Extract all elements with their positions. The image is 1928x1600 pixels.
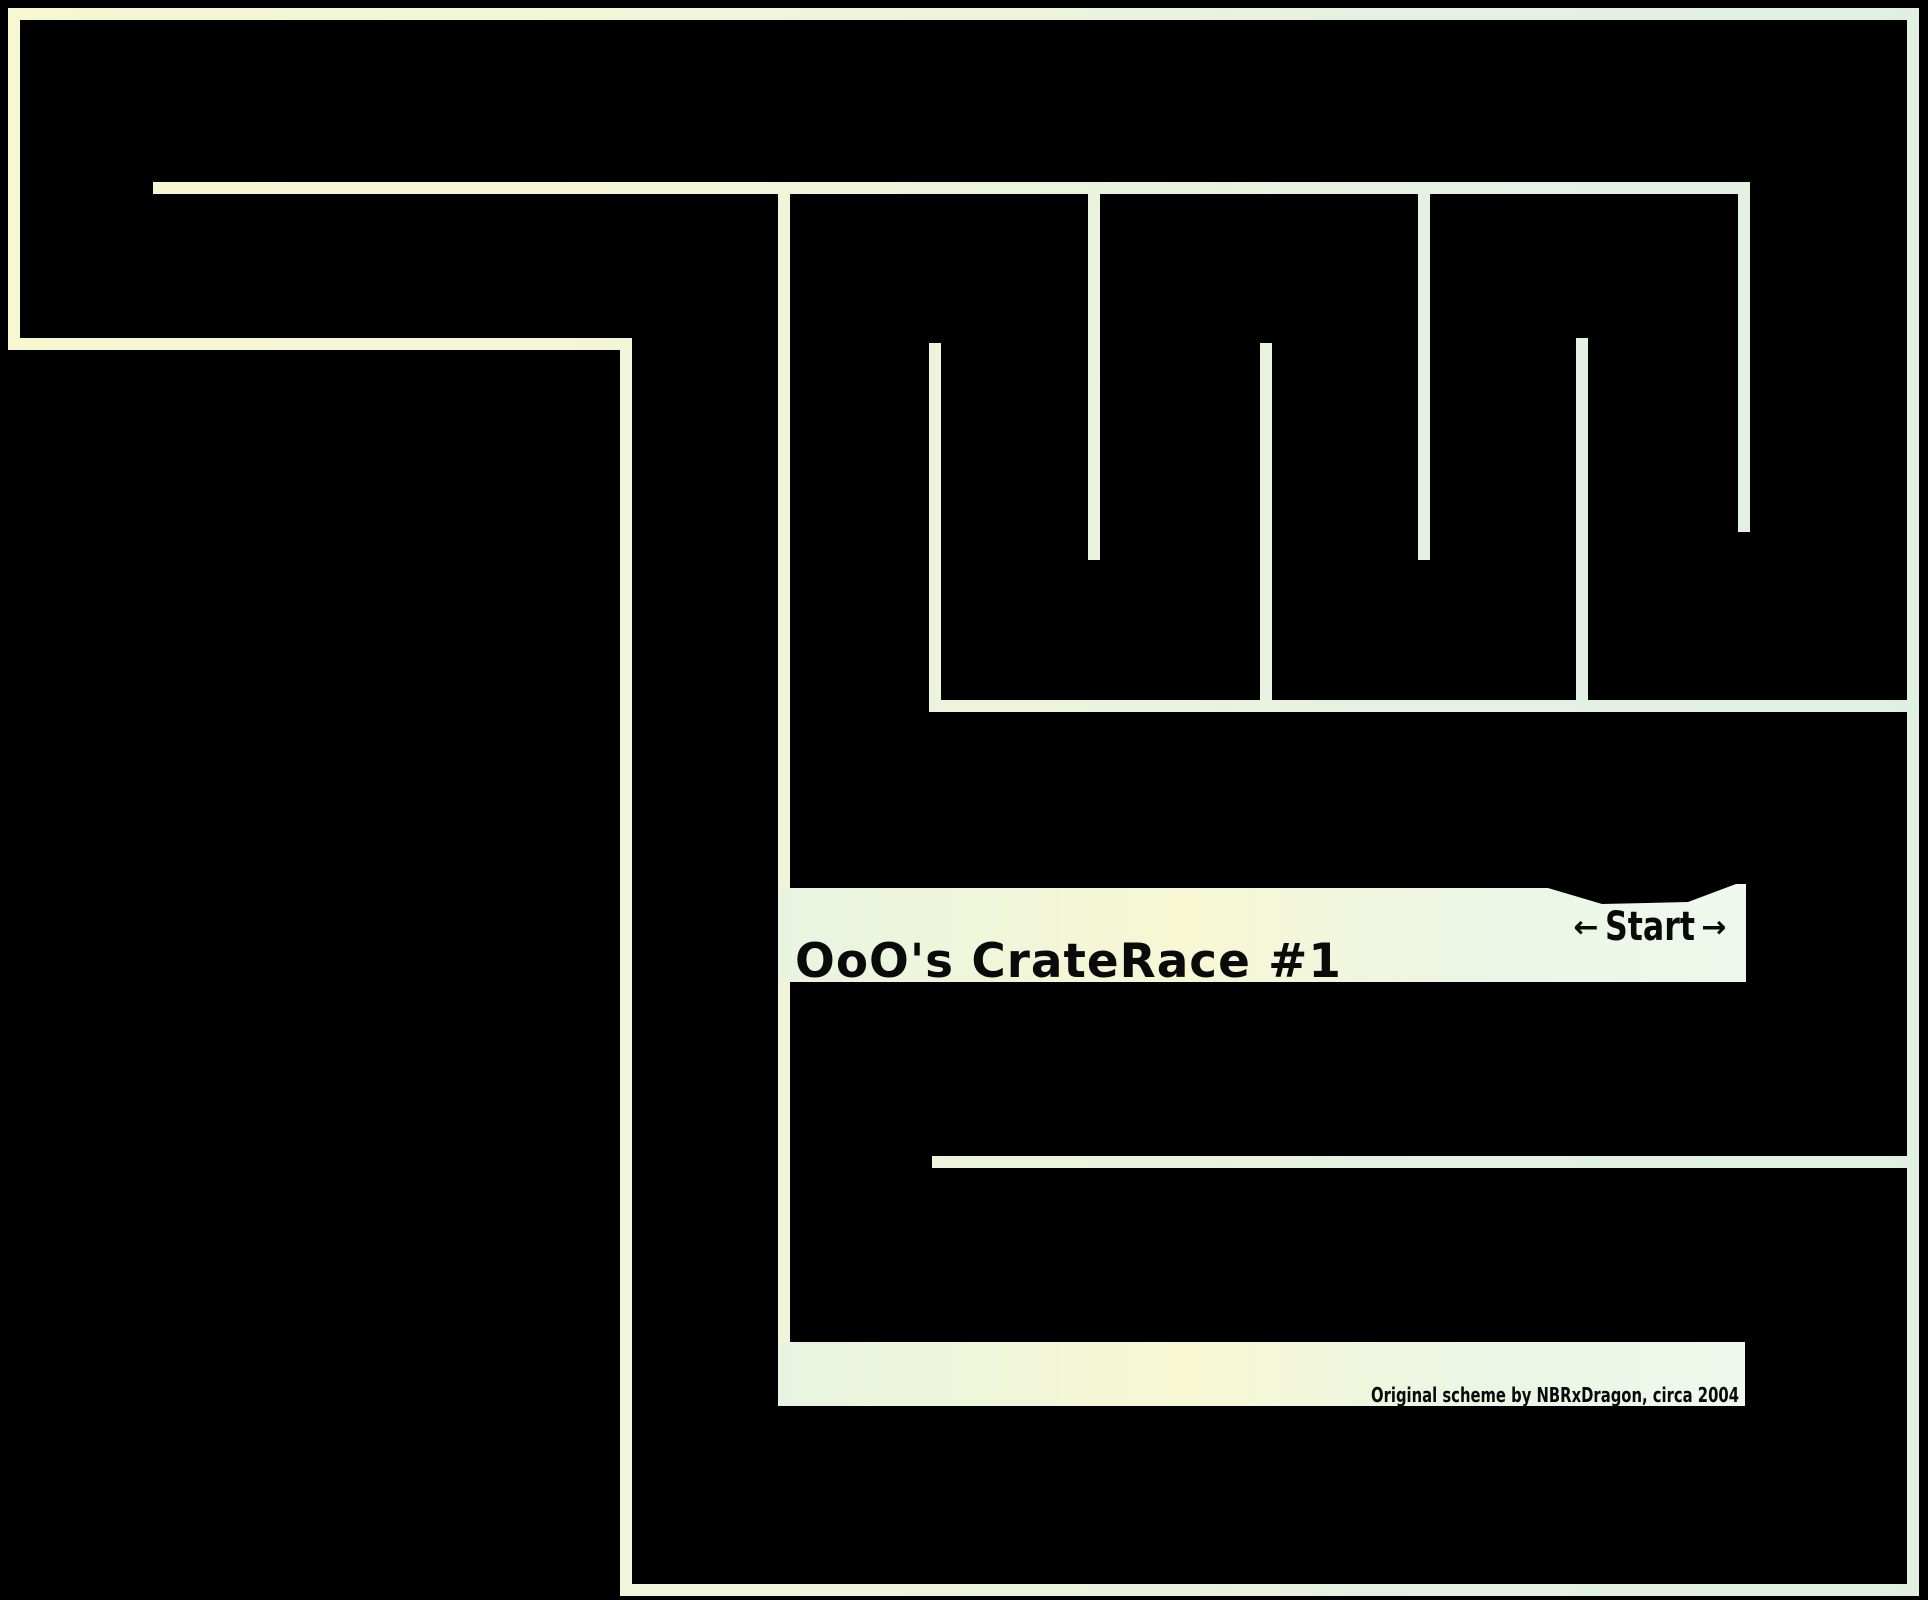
wall-right-border: [1907, 8, 1919, 1596]
start-left-arrow-icon: ←: [1573, 910, 1598, 945]
wall-comb-bottom: [929, 700, 1919, 712]
crate-race-map-stage: OoO's CrateRace #1 ← Start → Original sc…: [0, 0, 1928, 1600]
crate-race-map: OoO's CrateRace #1 ← Start → Original sc…: [0, 0, 1928, 1600]
wall-mid-vertical-lower: [778, 982, 790, 1344]
start-right-arrow-icon: →: [1701, 910, 1726, 945]
wall-left-long-vertical: [620, 338, 632, 1596]
wall-rising-tooth-1: [929, 343, 941, 700]
wall-hanging-tooth-1: [1088, 194, 1100, 560]
map-title: OoO's CrateRace #1: [795, 934, 1342, 989]
wall-left-horizontal: [8, 338, 632, 350]
wall-rising-tooth-3: [1576, 338, 1588, 700]
wall-rising-tooth-2: [1260, 343, 1272, 700]
attribution-text: Original scheme by NBRxDragon, circa 200…: [1371, 1383, 1739, 1407]
wall-hanging-tooth-2: [1418, 194, 1430, 560]
wall-mid-vertical-upper: [778, 194, 790, 890]
wall-bottom: [620, 1584, 1919, 1596]
wall-corner-tooth: [1738, 194, 1750, 532]
wall-left-border: [8, 8, 20, 350]
start-gate: ← Start →: [1573, 904, 1726, 950]
start-label: Start: [1605, 904, 1695, 950]
wall-lower-horizontal: [932, 1156, 1919, 1168]
wall-top-border: [8, 8, 1919, 20]
wall-comb-top: [153, 182, 1750, 194]
